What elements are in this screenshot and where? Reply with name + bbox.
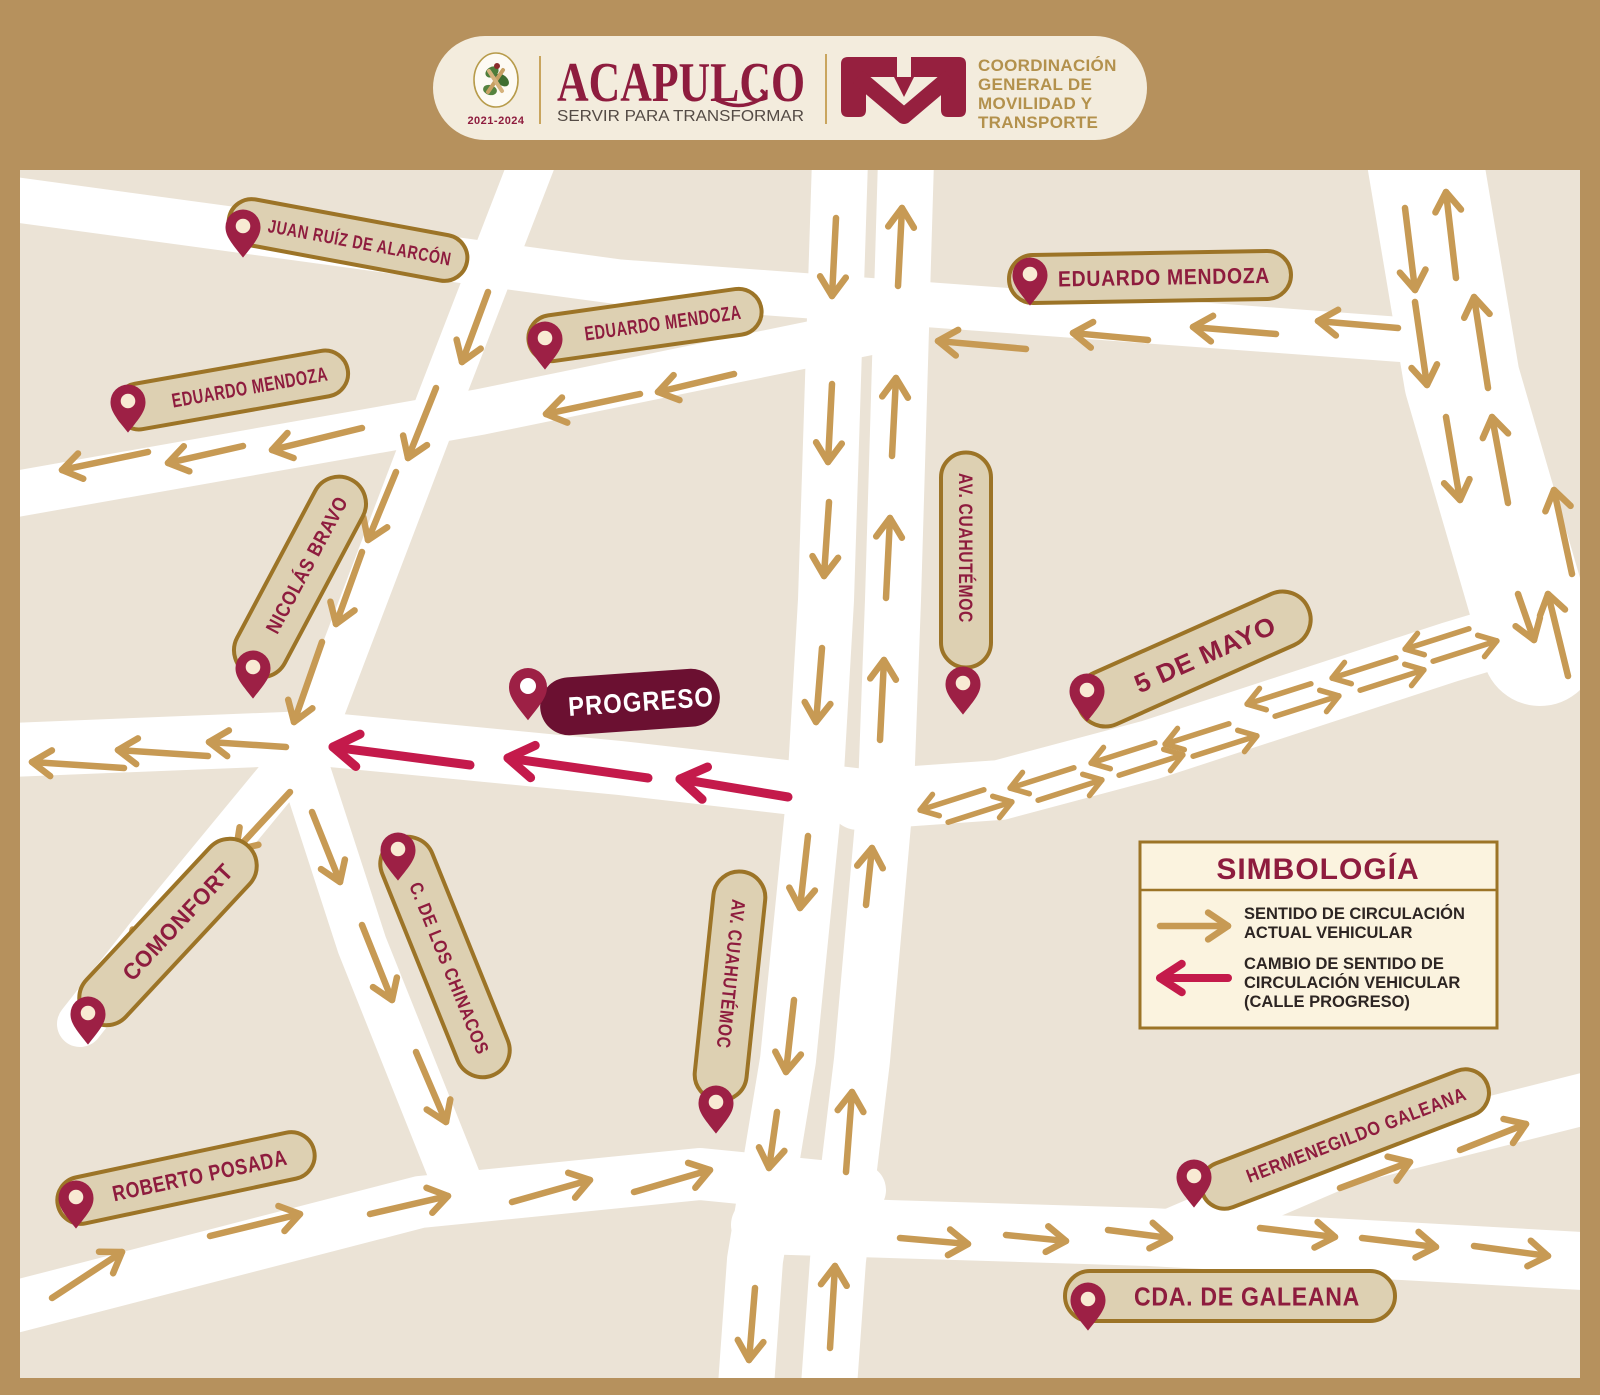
svg-text:SENTIDO DE CIRCULACIÓN: SENTIDO DE CIRCULACIÓN — [1244, 904, 1465, 923]
svg-text:AV. CUAHUTÉMOC: AV. CUAHUTÉMOC — [954, 473, 976, 623]
svg-text:CAMBIO DE SENTIDO DE: CAMBIO DE SENTIDO DE — [1244, 955, 1444, 973]
svg-text:MOVILIDAD Y: MOVILIDAD Y — [978, 94, 1093, 113]
svg-text:SIMBOLOGÍA: SIMBOLOGÍA — [1216, 852, 1419, 886]
svg-text:COORDINACIÓN: COORDINACIÓN — [978, 56, 1117, 75]
svg-text:GENERAL DE: GENERAL DE — [978, 75, 1092, 94]
svg-text:TRANSPORTE: TRANSPORTE — [978, 113, 1098, 132]
svg-text:ACTUAL VEHICULAR: ACTUAL VEHICULAR — [1244, 924, 1412, 942]
svg-text:ACAPULCO: ACAPULCO — [557, 52, 805, 114]
svg-text:CDA. DE GALEANA: CDA. DE GALEANA — [1134, 1281, 1360, 1311]
svg-text:SERVIR PARA TRANSFORMAR: SERVIR PARA TRANSFORMAR — [557, 108, 804, 125]
svg-text:EDUARDO MENDOZA: EDUARDO MENDOZA — [1058, 263, 1270, 292]
svg-text:CIRCULACIÓN VEHICULAR: CIRCULACIÓN VEHICULAR — [1244, 973, 1460, 992]
svg-text:(CALLE PROGRESO): (CALLE PROGRESO) — [1244, 993, 1410, 1011]
svg-text:2021-2024: 2021-2024 — [467, 115, 524, 127]
